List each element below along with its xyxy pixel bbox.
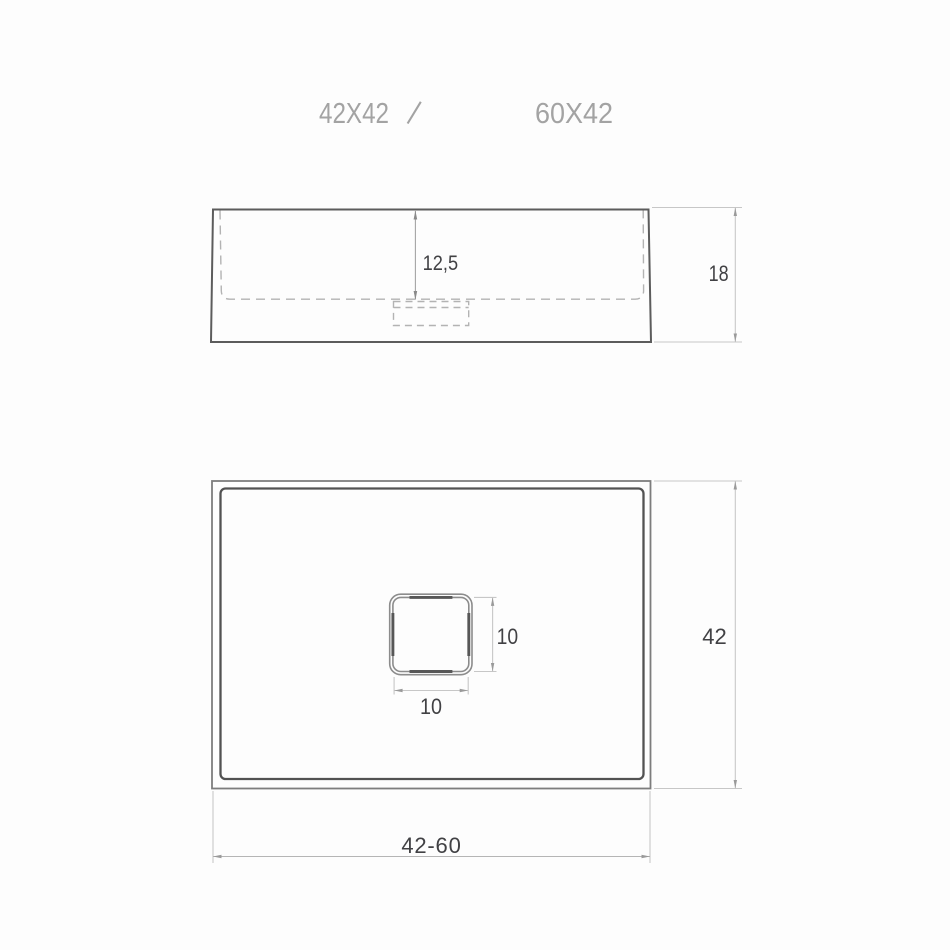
svg-text:12,5: 12,5 [423,252,459,275]
svg-text:18: 18 [709,261,729,286]
svg-text:10: 10 [420,694,442,719]
svg-text:42-60: 42-60 [401,833,461,858]
svg-text:60X42: 60X42 [535,98,613,130]
svg-text:10: 10 [497,624,519,649]
svg-text:42: 42 [702,624,726,649]
svg-text:42X42: 42X42 [319,98,389,130]
